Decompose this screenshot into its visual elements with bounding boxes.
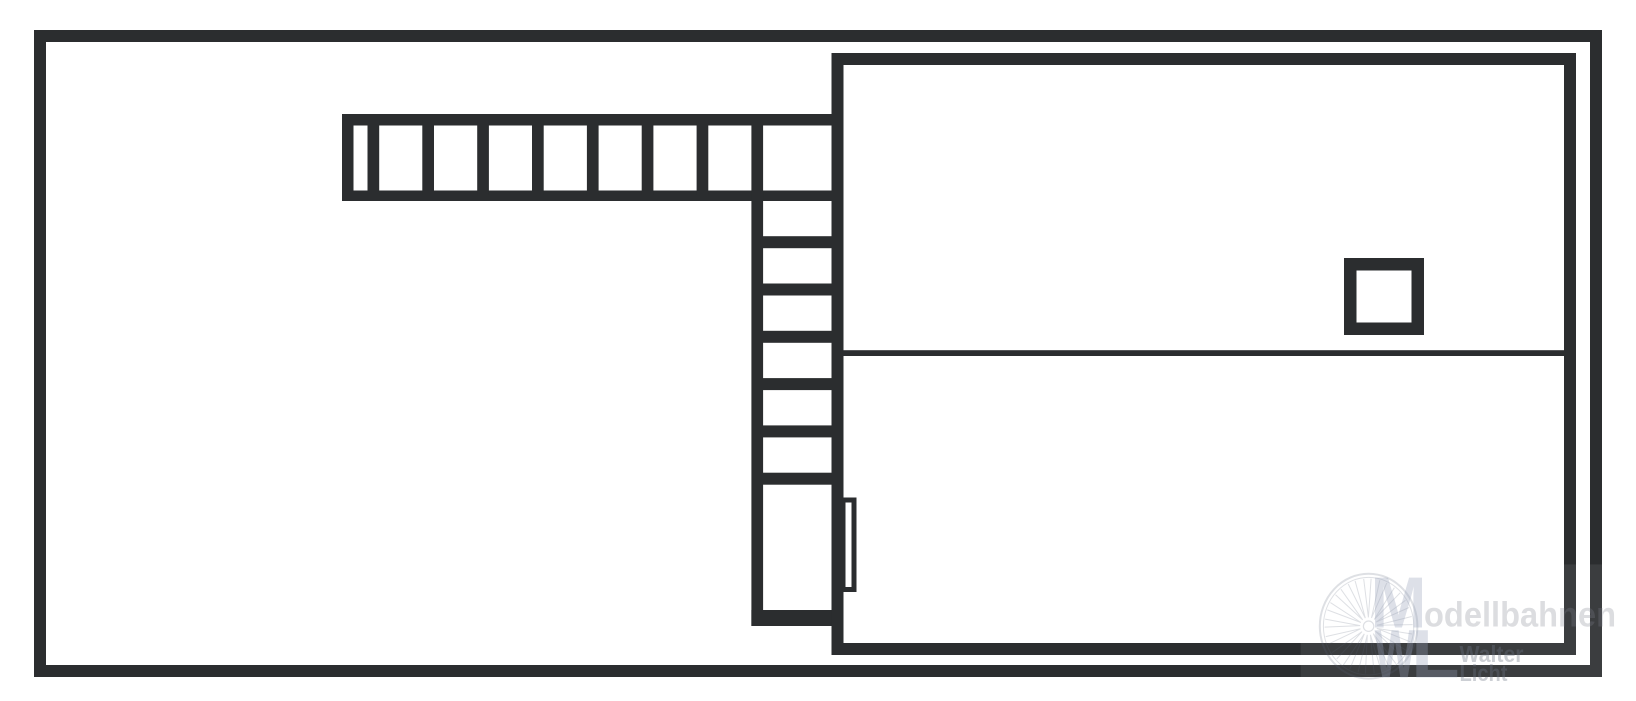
svg-text:Licht: Licht bbox=[1460, 660, 1508, 686]
svg-text:W: W bbox=[1375, 616, 1417, 693]
svg-text:L: L bbox=[1411, 616, 1460, 693]
